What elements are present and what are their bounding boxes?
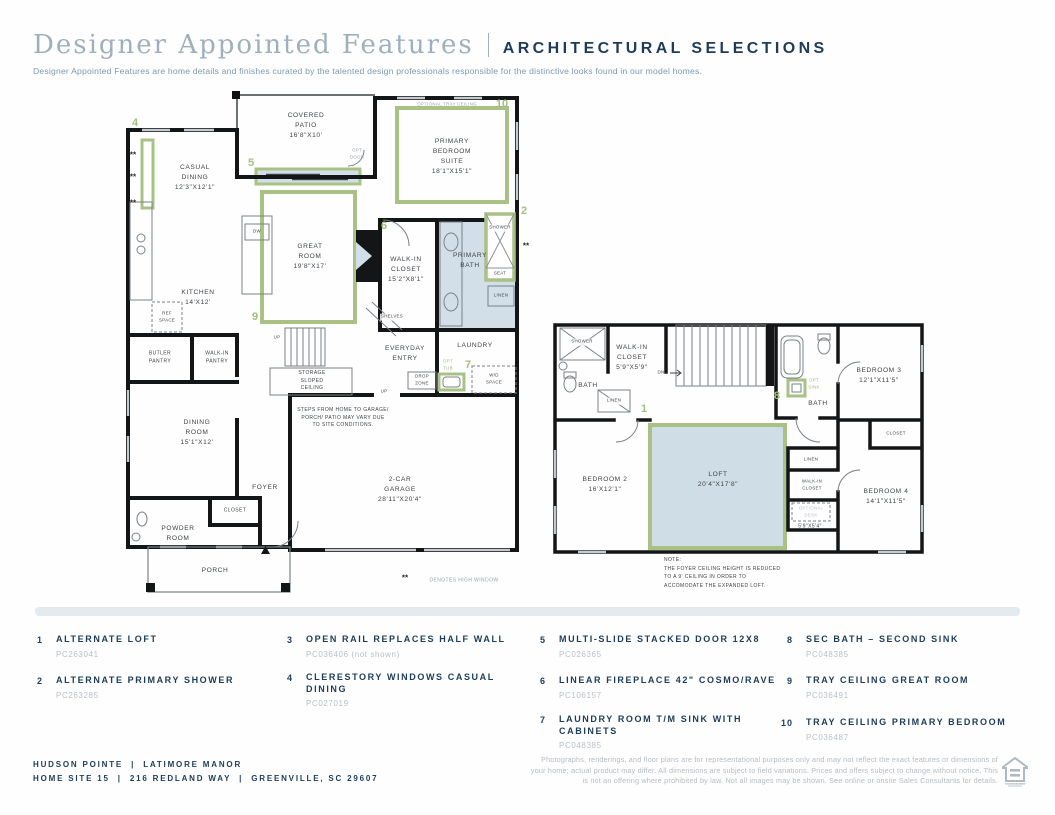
legend-code: PC036406 (not shown) (306, 650, 506, 659)
label-dining-room: DINING ROOM 15'1"X12' (181, 418, 214, 448)
legend-number: 4 (287, 672, 293, 708)
label-shower: SHOWER (488, 225, 512, 232)
label-closet: CLOSET (224, 507, 246, 515)
legend-number: 3 (287, 634, 293, 659)
legend-number: 6 (540, 675, 546, 700)
label-linen-low: LINEN (804, 457, 818, 464)
callout-7: 7 (465, 359, 471, 371)
legend-title: SEC BATH – SECOND SINK (806, 634, 959, 646)
title-divider (488, 33, 489, 57)
legend-title: MULTI-SLIDE STACKED DOOR 12X8 (559, 634, 760, 646)
legend-number: 10 (781, 717, 793, 742)
label-wic-upper: WALK-IN CLOSET 5'9"X5'9" (616, 343, 648, 373)
label-wic-lower: WALK-IN CLOSET (802, 478, 822, 491)
legend-code: PC263041 (56, 650, 158, 659)
label-bath-right: BATH (808, 399, 828, 409)
legend-title: OPEN RAIL REPLACES HALF WALL (306, 634, 506, 646)
legend-code: PC263285 (56, 691, 234, 700)
label-casual-dining: CASUAL DINING 12'3"X12'1" (175, 163, 215, 193)
clerestory-windows-box (142, 140, 153, 208)
high-window-mark: ** (523, 242, 529, 251)
legend-code: PC036487 (806, 733, 1006, 742)
label-drop-zone: DROP ZONE (415, 373, 429, 386)
label-everyday-entry: EVERYDAY ENTRY (385, 344, 425, 364)
label-butler-pantry: BUTLER PANTRY (149, 351, 171, 366)
label-loft: LOFT 20'4"X17'8" (698, 470, 738, 490)
legend-item-4: 4 CLERESTORY WINDOWS CASUAL DINING PC027… (287, 672, 495, 708)
page: Designer Appointed Features ARCHITECTURA… (0, 0, 1055, 815)
legend-code: PC036491 (806, 691, 969, 700)
label-dn: DN (658, 370, 665, 377)
label-up-garage: UP (381, 389, 388, 396)
label-shelves: SHELVES (380, 314, 404, 321)
label-walk-in-pantry: WALK-IN PANTRY (205, 351, 228, 366)
legend-title: ALTERNATE LOFT (56, 634, 158, 646)
callout-6: 6 (381, 220, 387, 232)
label-wd-space: W/D SPACE (486, 372, 502, 385)
legend-code: PC048385 (559, 741, 742, 750)
label-bath-left: BATH (578, 381, 598, 391)
callout-1: 1 (641, 403, 647, 415)
label-covered-patio: COVERED PATIO 16'8"X10' (288, 111, 325, 141)
callout-2: 2 (521, 205, 527, 217)
legend-item-3: 3 OPEN RAIL REPLACES HALF WALL PC036406 … (287, 634, 506, 659)
legend-item-7: 7 LAUNDRY ROOM T/M SINK WITH CABINETS PC… (540, 714, 742, 750)
header: Designer Appointed Features ARCHITECTURA… (33, 30, 828, 60)
legend-item-10: 10 TRAY CEILING PRIMARY BEDROOM PC036487 (781, 717, 1006, 742)
callout-8: 8 (774, 390, 780, 402)
label-ref-space: REF SPACE (159, 310, 175, 323)
label-opt-tub: OPT TUB (443, 358, 453, 371)
label-up-stairs: UP (274, 335, 281, 342)
label-opt-sink: OPT SINK (808, 377, 819, 390)
label-steps-note: STEPS FROM HOME TO GARAGE/ PORCH/ PATIO … (297, 407, 389, 430)
legend-item-8: 8 SEC BATH – SECOND SINK PC048385 (787, 634, 959, 659)
label-foyer: FOYER (252, 483, 278, 493)
floor-plan-second: SHOWER WALK-IN CLOSET 5'9"X5'9" BATH LIN… (548, 320, 938, 615)
feature-legend: 1 ALTERNATE LOFT PC263041 2 ALTERNATE PR… (0, 630, 1055, 755)
legend-item-9: 9 TRAY CEILING GREAT ROOM PC036491 (787, 675, 969, 700)
opt-sink-box (788, 380, 805, 396)
callout-9: 9 (252, 311, 258, 323)
legend-title: TRAY CEILING PRIMARY BEDROOM (806, 717, 1006, 729)
legend-number: 2 (37, 675, 43, 700)
community-name: HUDSON POINTE | LATIMORE MANOR (33, 758, 378, 772)
label-walk-in-closet: WALK-IN CLOSET 15'2"X8'1" (388, 255, 424, 285)
label-storage: STORAGE SLOPED CEILING (298, 370, 325, 393)
home-site-address: HOME SITE 15 | 216 REDLAND WAY | GREENVI… (33, 772, 378, 786)
label-denotes-high-window: DENOTES HIGH WINDOW (430, 577, 499, 585)
equal-housing-icon (1002, 757, 1028, 792)
label-closet3: CLOSET (886, 431, 905, 438)
page-subtitle-caps: ARCHITECTURAL SELECTIONS (503, 40, 828, 58)
label-bedroom3: BEDROOM 3 12'1"X11'5" (857, 366, 902, 386)
legend-code: PC027019 (306, 699, 495, 708)
legend-number: 7 (540, 714, 546, 750)
label-porch: PORCH (202, 566, 229, 576)
legend-title: CLERESTORY WINDOWS CASUAL DINING (306, 672, 495, 695)
label-dw: DW (253, 229, 261, 236)
label-primary-suite: PRIMARY BEDROOM SUITE 18'1"X15'1" (432, 137, 472, 177)
legend-item-1: 1 ALTERNATE LOFT PC263041 (37, 634, 158, 659)
label-shower-2: SHOWER (570, 339, 594, 346)
label-bedroom2: BEDROOM 2 16'X12'1" (583, 475, 628, 495)
callout-10: 10 (496, 98, 508, 110)
label-great-room: GREAT ROOM 19'8"X17' (294, 242, 327, 272)
legal-disclaimer: Photographs, renderings, and floor plans… (530, 755, 998, 787)
label-optional-desk: OPTIONAL DESK (799, 505, 824, 518)
legend-title: LINEAR FIREPLACE 42" COSMO/RAVE (559, 675, 776, 687)
page-title: Designer Appointed Features (33, 30, 474, 60)
stairs (676, 325, 774, 386)
footer-address-block: HUDSON POINTE | LATIMORE MANOR HOME SITE… (33, 758, 378, 786)
label-linen: LINEN (494, 293, 508, 300)
legend-title: TRAY CEILING GREAT ROOM (806, 675, 969, 687)
legend-item-6: 6 LINEAR FIREPLACE 42" COSMO/RAVE PC1061… (540, 675, 776, 700)
section-divider (35, 607, 1020, 616)
callout-4: 4 (132, 117, 138, 129)
high-window-stars: ** (402, 574, 408, 583)
legend-number: 8 (787, 634, 793, 659)
legend-number: 9 (787, 675, 793, 700)
legend-item-5: 5 MULTI-SLIDE STACKED DOOR 12X8 PC026365 (540, 634, 760, 659)
callout-5: 5 (248, 157, 254, 169)
label-powder-room: POWDER ROOM (161, 524, 194, 544)
legend-number: 5 (540, 634, 546, 659)
label-garage: 2-CAR GARAGE 28'11"X20'4" (378, 475, 422, 505)
legend-title: LAUNDRY ROOM T/M SINK WITH CABINETS (559, 714, 742, 737)
label-primary-bath: PRIMARY BATH (453, 251, 487, 271)
header-description: Designer Appointed Features are home det… (33, 66, 702, 76)
label-opt-door: OPT DOOR (350, 147, 364, 160)
high-window-mark: ** (130, 199, 136, 208)
high-window-mark: ** (130, 173, 136, 182)
legend-title: ALTERNATE PRIMARY SHOWER (56, 675, 234, 687)
linear-fireplace (356, 230, 378, 282)
label-optional-tray-primary: OPTIONAL TRAY CEILING (417, 102, 477, 109)
floor-plan-first: COVERED PATIO 16'8"X10' OPTIONAL TRAY CE… (120, 90, 550, 605)
label-loft-note: NOTE: THE FOYER CEILING HEIGHT IS REDUCE… (664, 556, 780, 590)
legend-code: PC048385 (806, 650, 959, 659)
legend-code: PC106157 (559, 691, 776, 700)
label-kitchen: KITCHEN 14'X12' (181, 288, 214, 308)
label-linen-up: LINEN (606, 398, 622, 405)
label-bedroom4: BEDROOM 4 14'1"X11'5" (864, 487, 909, 507)
legend-item-2: 2 ALTERNATE PRIMARY SHOWER PC263285 (37, 675, 234, 700)
label-laundry: LAUNDRY (457, 341, 493, 351)
label-desk-dims: 5'9"X5'4" (798, 523, 822, 531)
legend-code: PC026365 (559, 650, 760, 659)
label-seat: SEAT (494, 271, 506, 278)
legend-number: 1 (37, 634, 43, 659)
high-window-mark: ** (130, 151, 136, 160)
